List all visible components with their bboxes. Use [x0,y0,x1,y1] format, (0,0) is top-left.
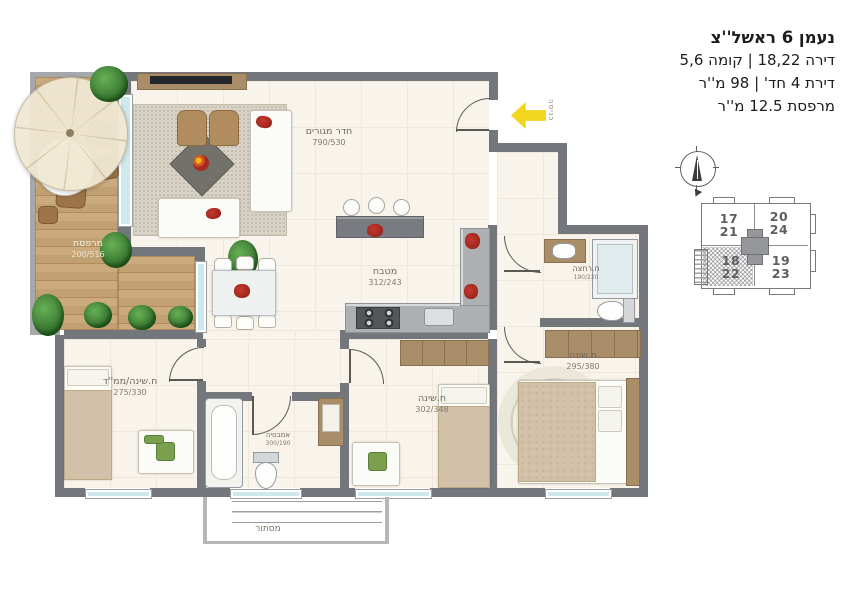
blanket [64,390,112,480]
wall [489,143,567,152]
bathtub-inner [211,405,237,480]
laundry-wall [385,497,389,543]
laundry-wall [203,497,207,543]
headboard [626,378,640,486]
room-label-living: חדר מגורים790/530 [294,126,364,148]
wall [197,488,230,497]
window [545,489,612,499]
laundry-wall [203,541,389,544]
door-leaf [349,349,351,383]
wall [55,488,85,497]
wall [558,143,567,234]
bar-stool [343,199,360,216]
bar-stool [368,197,385,214]
toilet-icon [597,301,625,321]
dining-chair [214,314,232,328]
wall [64,330,203,339]
project-header: נעמן 6 ראשל''צ דירה 18,22 | קומה 5,6 דיר… [595,26,835,118]
entrance-label: כניסה [547,99,555,121]
bar-stool [393,199,410,216]
wall [610,488,648,497]
room-label-bathroom: ח.רחצה190/220 [560,264,612,282]
dining-chair [258,314,276,328]
desk-chair [156,442,175,461]
compass-tick [675,167,681,168]
balcony-railing [30,72,98,77]
rooms-area-line: דירת 4 חד' | 98 מ''ר [595,72,835,95]
wall [55,335,64,497]
apartment-floor-line: דירה 18,22 | קומה 5,6 [595,49,835,72]
wardrobe [400,340,490,366]
tv-icon [150,76,232,84]
laundry-label: מסתור [240,524,296,535]
entrance-arrow-icon [511,102,546,129]
island-flowers [367,224,383,237]
wall [197,339,206,347]
apartment-floor-plan: כניסה חדר מגורים790/530 מטבח312/243 מרפס… [0,0,841,595]
keyplan-balcony-strip [694,249,708,285]
door-leaf [504,361,540,363]
toilet-tank [623,298,635,323]
compass-tick [713,167,719,168]
door-leaf [169,379,203,381]
wall [558,225,648,234]
blanket [518,382,596,482]
window [195,261,207,333]
patio-stool [38,206,58,224]
plant-icon [90,66,128,102]
pillow [598,386,622,408]
door-leaf [456,129,489,131]
wall [340,339,349,349]
balcony-area-line: מרפסת 12.5 מ''ר [595,95,835,118]
room-label-bedroom-middle: ח.שינה302/348 [400,393,464,415]
wall [639,225,648,497]
plant-icon [32,294,64,336]
room-label-balcony: מרפסת200/516 [58,238,118,260]
sink-icon [424,308,454,326]
red-kettle [464,284,478,299]
sink-icon [552,243,576,259]
room-label-bedroom-safe: ח.שינה/ממ''ד275/330 [88,376,172,398]
compass-tick [696,146,697,152]
door-leaf [252,396,254,434]
wall [340,488,355,497]
wall [430,488,497,497]
stove-icon [356,307,400,329]
red-vase [465,233,480,249]
window [230,489,302,499]
dining-chair [236,256,254,270]
floor-corridor [203,330,340,339]
window [355,489,432,499]
keyplan-unit-18-22: 1822 [714,250,748,284]
cabinet-front [322,404,340,432]
plant-icon [84,302,112,328]
plant-icon [168,306,193,328]
keyplan-unit-17-21: 1721 [712,208,746,242]
armchair [209,110,239,146]
pillow [598,410,622,432]
keyplan-unit-20-24: 2024 [762,206,796,240]
table-flowers [234,284,250,298]
desk-chair [368,452,387,471]
umbrella-pole [66,129,74,137]
room-label-bedroom-right: ח.שינה295/380 [548,350,618,372]
keyplan-unit-19-23: 1923 [764,250,798,284]
window [85,489,152,499]
laundry-railing [232,501,382,523]
room-label-kitchen: מטבח312/243 [352,266,418,288]
sofa [158,198,240,238]
project-title: נעמן 6 ראשל''צ [595,26,835,49]
armchair [177,110,207,146]
desk-items [144,435,164,444]
room-label-bath: אמבטיה300/190 [248,431,308,447]
door-leaf [504,270,540,272]
compass-needle-slit [697,160,698,179]
centerpiece-flowers [193,155,209,171]
compass-south-pointer [692,189,702,199]
floor-hall [497,152,558,234]
plant-icon [128,305,156,330]
dining-chair [236,316,254,330]
wall [489,72,498,100]
blanket [438,406,490,488]
